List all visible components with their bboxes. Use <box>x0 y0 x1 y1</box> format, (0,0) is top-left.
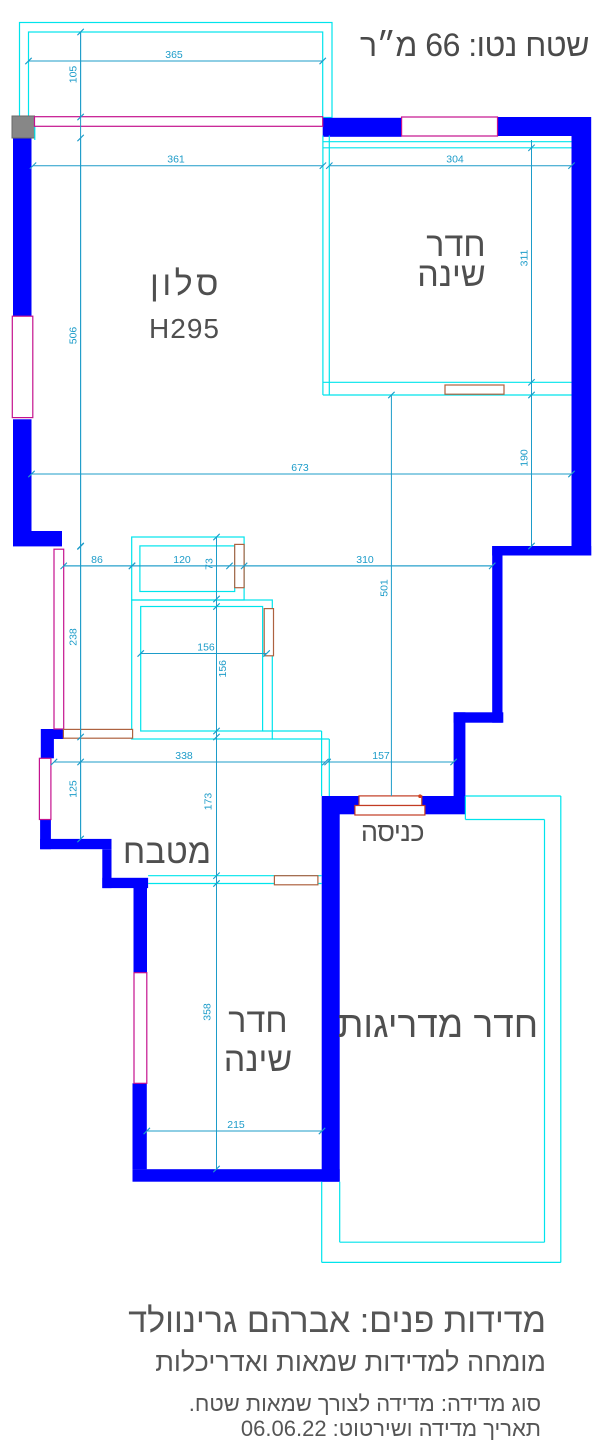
svg-text:כניסה: כניסה <box>361 817 424 847</box>
svg-text:שינה: שינה <box>417 256 485 294</box>
svg-text:238: 238 <box>68 628 80 646</box>
svg-text:שטח נטו: 66 מ״ר: שטח נטו: 66 מ״ר <box>360 27 589 63</box>
svg-text:סוג מדידה: מדידה לצורך שמאות ש: סוג מדידה: מדידה לצורך שמאות שטח. <box>189 1391 541 1416</box>
svg-text:215: 215 <box>227 1119 245 1131</box>
svg-text:311: 311 <box>519 249 531 266</box>
svg-text:157: 157 <box>372 750 390 762</box>
svg-text:תאריך מדידה ושירטוט: 06.06.22: תאריך מדידה ושירטוט: 06.06.22 <box>241 1416 541 1441</box>
svg-text:304: 304 <box>446 154 464 166</box>
svg-text:156: 156 <box>217 660 229 678</box>
svg-text:361: 361 <box>167 154 185 166</box>
svg-text:501: 501 <box>378 579 390 597</box>
svg-text:673: 673 <box>291 462 309 474</box>
svg-text:חדר: חדר <box>228 1002 287 1040</box>
svg-text:סלון: סלון <box>150 265 222 303</box>
svg-text:73: 73 <box>204 558 216 570</box>
svg-text:506: 506 <box>68 327 80 345</box>
svg-text:120: 120 <box>173 554 191 566</box>
svg-text:310: 310 <box>356 554 374 566</box>
svg-text:173: 173 <box>203 793 215 811</box>
svg-text:86: 86 <box>91 554 103 566</box>
svg-text:365: 365 <box>165 49 183 61</box>
svg-text:358: 358 <box>202 1003 214 1021</box>
svg-text:חדר מדריגות: חדר מדריגות <box>338 1004 538 1045</box>
svg-text:שינה: שינה <box>224 1041 292 1079</box>
svg-text:מומחה למדידות שמאות ואדריכלות: מומחה למדידות שמאות ואדריכלות <box>155 1347 546 1377</box>
svg-text:190: 190 <box>519 449 531 467</box>
svg-text:156: 156 <box>197 642 215 654</box>
svg-text:H295: H295 <box>149 313 220 344</box>
svg-text:125: 125 <box>68 780 80 798</box>
svg-text:מטבח: מטבח <box>123 833 211 871</box>
svg-text:מדידות פנים: אברהם גרינוולד: מדידות פנים: אברהם גרינוולד <box>128 1302 546 1340</box>
svg-text:105: 105 <box>68 66 80 84</box>
svg-text:338: 338 <box>175 750 193 762</box>
